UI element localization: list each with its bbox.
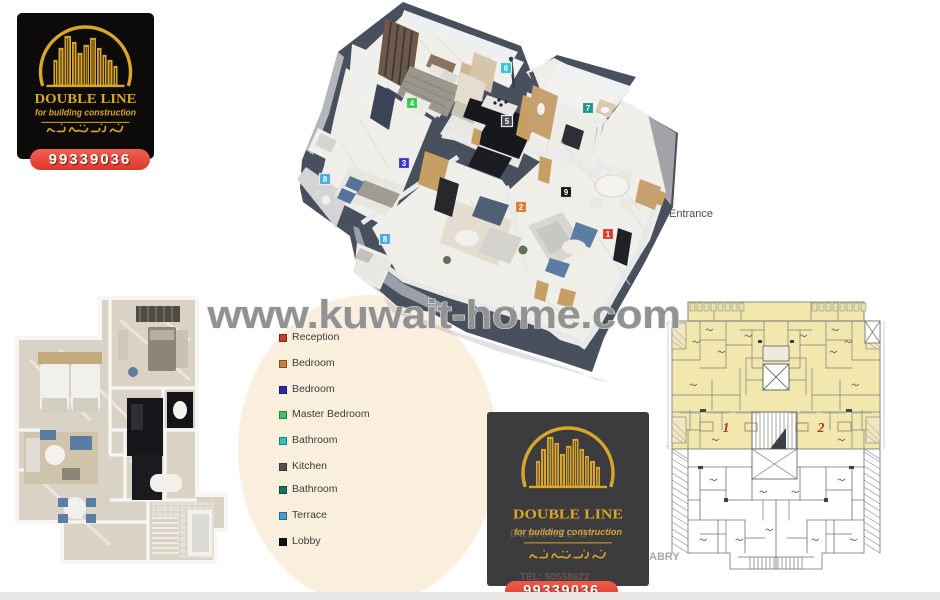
svg-text:DOUBLE LINE: DOUBLE LINE (35, 92, 137, 107)
svg-text:7: 7 (586, 104, 591, 113)
svg-text:6: 6 (504, 64, 509, 73)
svg-text:www.kuwait-home.com: www.kuwait-home.com (206, 293, 680, 337)
svg-text:9: 9 (564, 188, 569, 197)
svg-text:1: 1 (606, 230, 611, 239)
svg-text:Entrance: Entrance (669, 208, 713, 220)
svg-text:3: 3 (402, 159, 407, 168)
svg-text:DOUBLE LINE: DOUBLE LINE (513, 508, 623, 523)
svg-text:for building construction: for building construction (35, 107, 136, 117)
svg-text:8: 8 (383, 235, 388, 244)
svg-text:4: 4 (410, 99, 415, 108)
svg-text:1: 1 (723, 421, 730, 436)
svg-text:5: 5 (505, 117, 510, 126)
svg-text:2: 2 (519, 203, 524, 212)
svg-text:8: 8 (323, 175, 328, 184)
svg-text:2: 2 (817, 421, 825, 436)
